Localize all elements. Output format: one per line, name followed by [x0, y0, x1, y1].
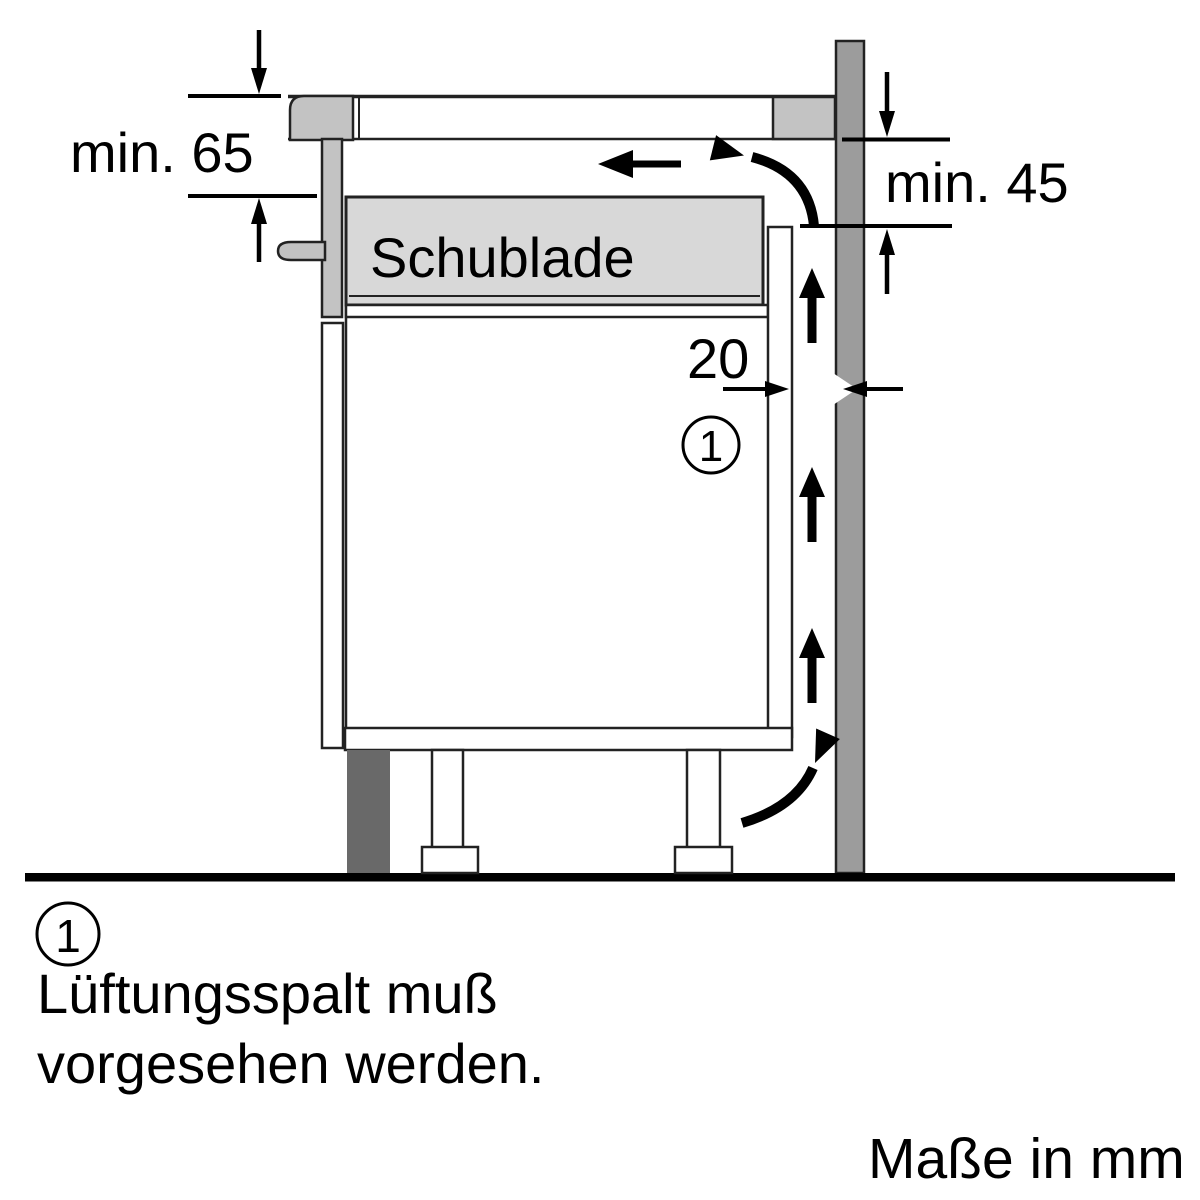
arrow-up-icon [251, 198, 267, 224]
arrow-up-icon [879, 229, 895, 255]
drawer-handle [278, 242, 325, 260]
drawer-front [322, 139, 342, 317]
drawer-rail [346, 305, 768, 317]
callout-1-number: 1 [699, 422, 723, 471]
installation-diagram: Schublade min. 65 min. 45 20 [0, 0, 1200, 1200]
leg-front-foot [422, 847, 478, 873]
arrow-down-icon [879, 111, 895, 137]
drawer-label: Schublade [370, 226, 635, 289]
airflow-arrow-gap-3 [799, 628, 825, 703]
leg-back-foot [675, 847, 732, 873]
airflow-arrow-gap-1 [799, 268, 825, 343]
plinth [347, 750, 390, 873]
dim-vent-gap-label: 20 [687, 327, 749, 390]
airflow-arrow-left [598, 150, 681, 178]
cabinet-bottom-board [345, 728, 792, 750]
leg-back-stem [687, 750, 720, 848]
leg-front-stem [432, 750, 463, 848]
hob-body [288, 95, 836, 140]
dim-top-clearance-label: min. 65 [70, 121, 254, 184]
callout-1-marker: 1 [683, 417, 739, 473]
wall [836, 41, 864, 873]
legend-note-line1: Lüftungsspalt muß [37, 962, 498, 1025]
dim-vent-gap [723, 381, 903, 397]
cabinet-back-panel [768, 227, 792, 737]
arrow-down-icon [251, 68, 267, 94]
cabinet-door [322, 323, 343, 748]
units-label: Maße in mm [868, 1127, 1185, 1191]
dim-side-clearance-label: min. 45 [885, 151, 1069, 214]
hob-right-edge [773, 97, 835, 139]
floor-line [25, 873, 1175, 882]
airflow-arrow-gap-2 [799, 467, 825, 542]
hob-left-edge [290, 96, 353, 140]
legend-callout-number: 1 [55, 910, 81, 962]
legend-callout-marker: 1 [37, 903, 99, 965]
diagram-canvas: Schublade min. 65 min. 45 20 [0, 0, 1200, 1200]
legend-note-line2: vorgesehen werden. [37, 1032, 544, 1095]
